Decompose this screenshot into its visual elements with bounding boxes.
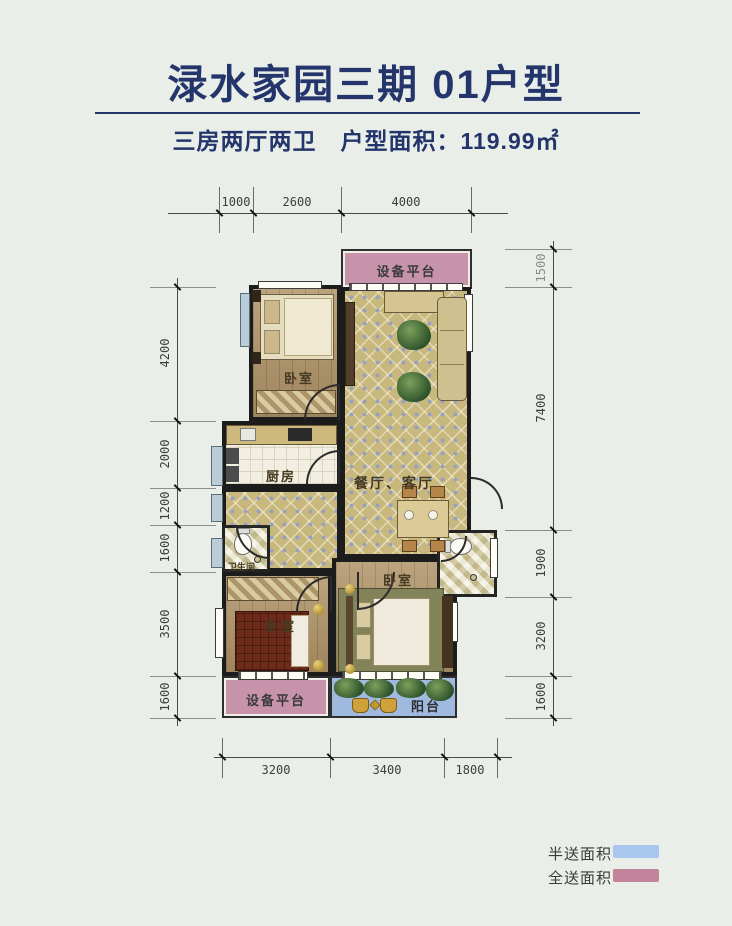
title-divider — [95, 112, 640, 114]
door-leaf — [338, 450, 340, 484]
room-label: 设备平台 — [222, 690, 330, 709]
dining-table — [397, 500, 449, 538]
legend-swatch-full-gift — [613, 869, 659, 882]
dim-ext — [505, 530, 572, 531]
door-leaf — [236, 525, 270, 527]
dimension-label: 1600 — [158, 526, 172, 570]
plate — [428, 510, 438, 520]
kitchen-appliance — [226, 466, 239, 482]
dimension-label: 4000 — [384, 195, 428, 209]
window — [215, 608, 224, 658]
door-arc-entry — [471, 477, 503, 509]
duvet — [284, 298, 332, 356]
plant — [396, 678, 426, 698]
bedside-lamp — [345, 584, 355, 594]
dimension-label: 3200 — [534, 614, 548, 658]
room-label: 卧室 — [383, 570, 413, 589]
dimension-label: 4200 — [158, 331, 172, 375]
legend-swatch-half-gift — [613, 845, 659, 858]
door-leaf — [338, 384, 340, 420]
dim-ext — [150, 572, 216, 573]
dimension-label: 1800 — [448, 763, 492, 777]
dimension-label: 2600 — [275, 195, 319, 209]
door-leaf — [330, 576, 332, 612]
door-leaf — [357, 572, 359, 610]
dimension-label: 1900 — [534, 541, 548, 585]
bay-window-half-gift — [211, 494, 223, 522]
floorplan-flyer: 渌水家园三期 01户型 三房两厅两卫 户型面积：119.99㎡ 1000 260… — [0, 0, 732, 926]
dim-line-bottom — [214, 757, 512, 758]
plant — [334, 678, 364, 698]
dim-ext — [150, 287, 216, 288]
nightstand — [252, 290, 261, 302]
dim-line-right — [553, 241, 554, 726]
nightstand — [252, 352, 261, 364]
dim-tick — [219, 187, 220, 233]
dim-ext — [150, 421, 216, 422]
plant — [397, 372, 431, 402]
dimension-label: 3200 — [254, 763, 298, 777]
legend-label-half-gift: 半送面积 — [548, 843, 612, 864]
room-label: 设备平台 — [341, 261, 472, 280]
dim-tick — [253, 187, 254, 233]
window — [349, 283, 463, 291]
legend-label-full-gift: 全送面积 — [548, 867, 612, 888]
stove — [288, 428, 312, 441]
pillow — [264, 330, 280, 354]
sofa-cushion-line — [440, 330, 464, 331]
dimension-label: 1600 — [158, 675, 172, 719]
balcony-chair — [380, 698, 397, 713]
tv-cabinet — [345, 302, 355, 386]
dim-ext — [505, 597, 572, 598]
dim-tick — [341, 187, 342, 233]
dimension-label: 3400 — [365, 763, 409, 777]
floor-drain — [470, 574, 477, 581]
window — [258, 281, 322, 289]
plant — [364, 679, 394, 698]
window — [342, 671, 442, 680]
room-label: 餐厅、客厅 — [354, 473, 434, 493]
room-label: 厨房 — [266, 466, 296, 485]
window — [238, 671, 308, 680]
dim-line-left — [177, 278, 178, 726]
bay-window-half-gift — [211, 538, 223, 568]
dimension-label: 1600 — [534, 675, 548, 719]
duvet — [373, 598, 430, 666]
window — [490, 538, 498, 578]
sofa-cushion-line — [440, 364, 464, 365]
bay-window-half-gift — [240, 293, 250, 347]
dining-chair — [402, 540, 417, 552]
dimension-label: 1000 — [214, 195, 258, 209]
room-label: 卧室 — [266, 616, 296, 635]
pillow — [264, 300, 280, 324]
fridge — [226, 448, 239, 464]
dimension-label: 1500 — [534, 246, 548, 290]
plant — [397, 320, 431, 350]
headboard — [346, 596, 353, 668]
sink — [240, 428, 256, 441]
pillow — [356, 634, 371, 660]
room-label: 卧室 — [284, 368, 314, 387]
dimension-label: 2000 — [158, 432, 172, 476]
sofa — [437, 297, 467, 401]
balcony-chair — [352, 698, 369, 713]
dimension-label: 3500 — [158, 602, 172, 646]
bedside-lamp — [313, 660, 324, 671]
bedside-lamp — [345, 664, 355, 674]
bay-window-half-gift — [211, 446, 223, 486]
dimension-label: 1200 — [158, 484, 172, 528]
console-table — [384, 291, 444, 313]
plate — [404, 510, 414, 520]
room-label: 卫生间 — [228, 560, 255, 573]
dresser — [442, 596, 453, 668]
page-title: 渌水家园三期 01户型 — [0, 52, 732, 110]
page-subtitle: 三房两厅两卫 户型面积：119.99㎡ — [0, 122, 732, 156]
dimension-label: 7400 — [534, 386, 548, 430]
room-label: 阳台 — [404, 696, 448, 715]
dim-tick — [471, 187, 472, 233]
